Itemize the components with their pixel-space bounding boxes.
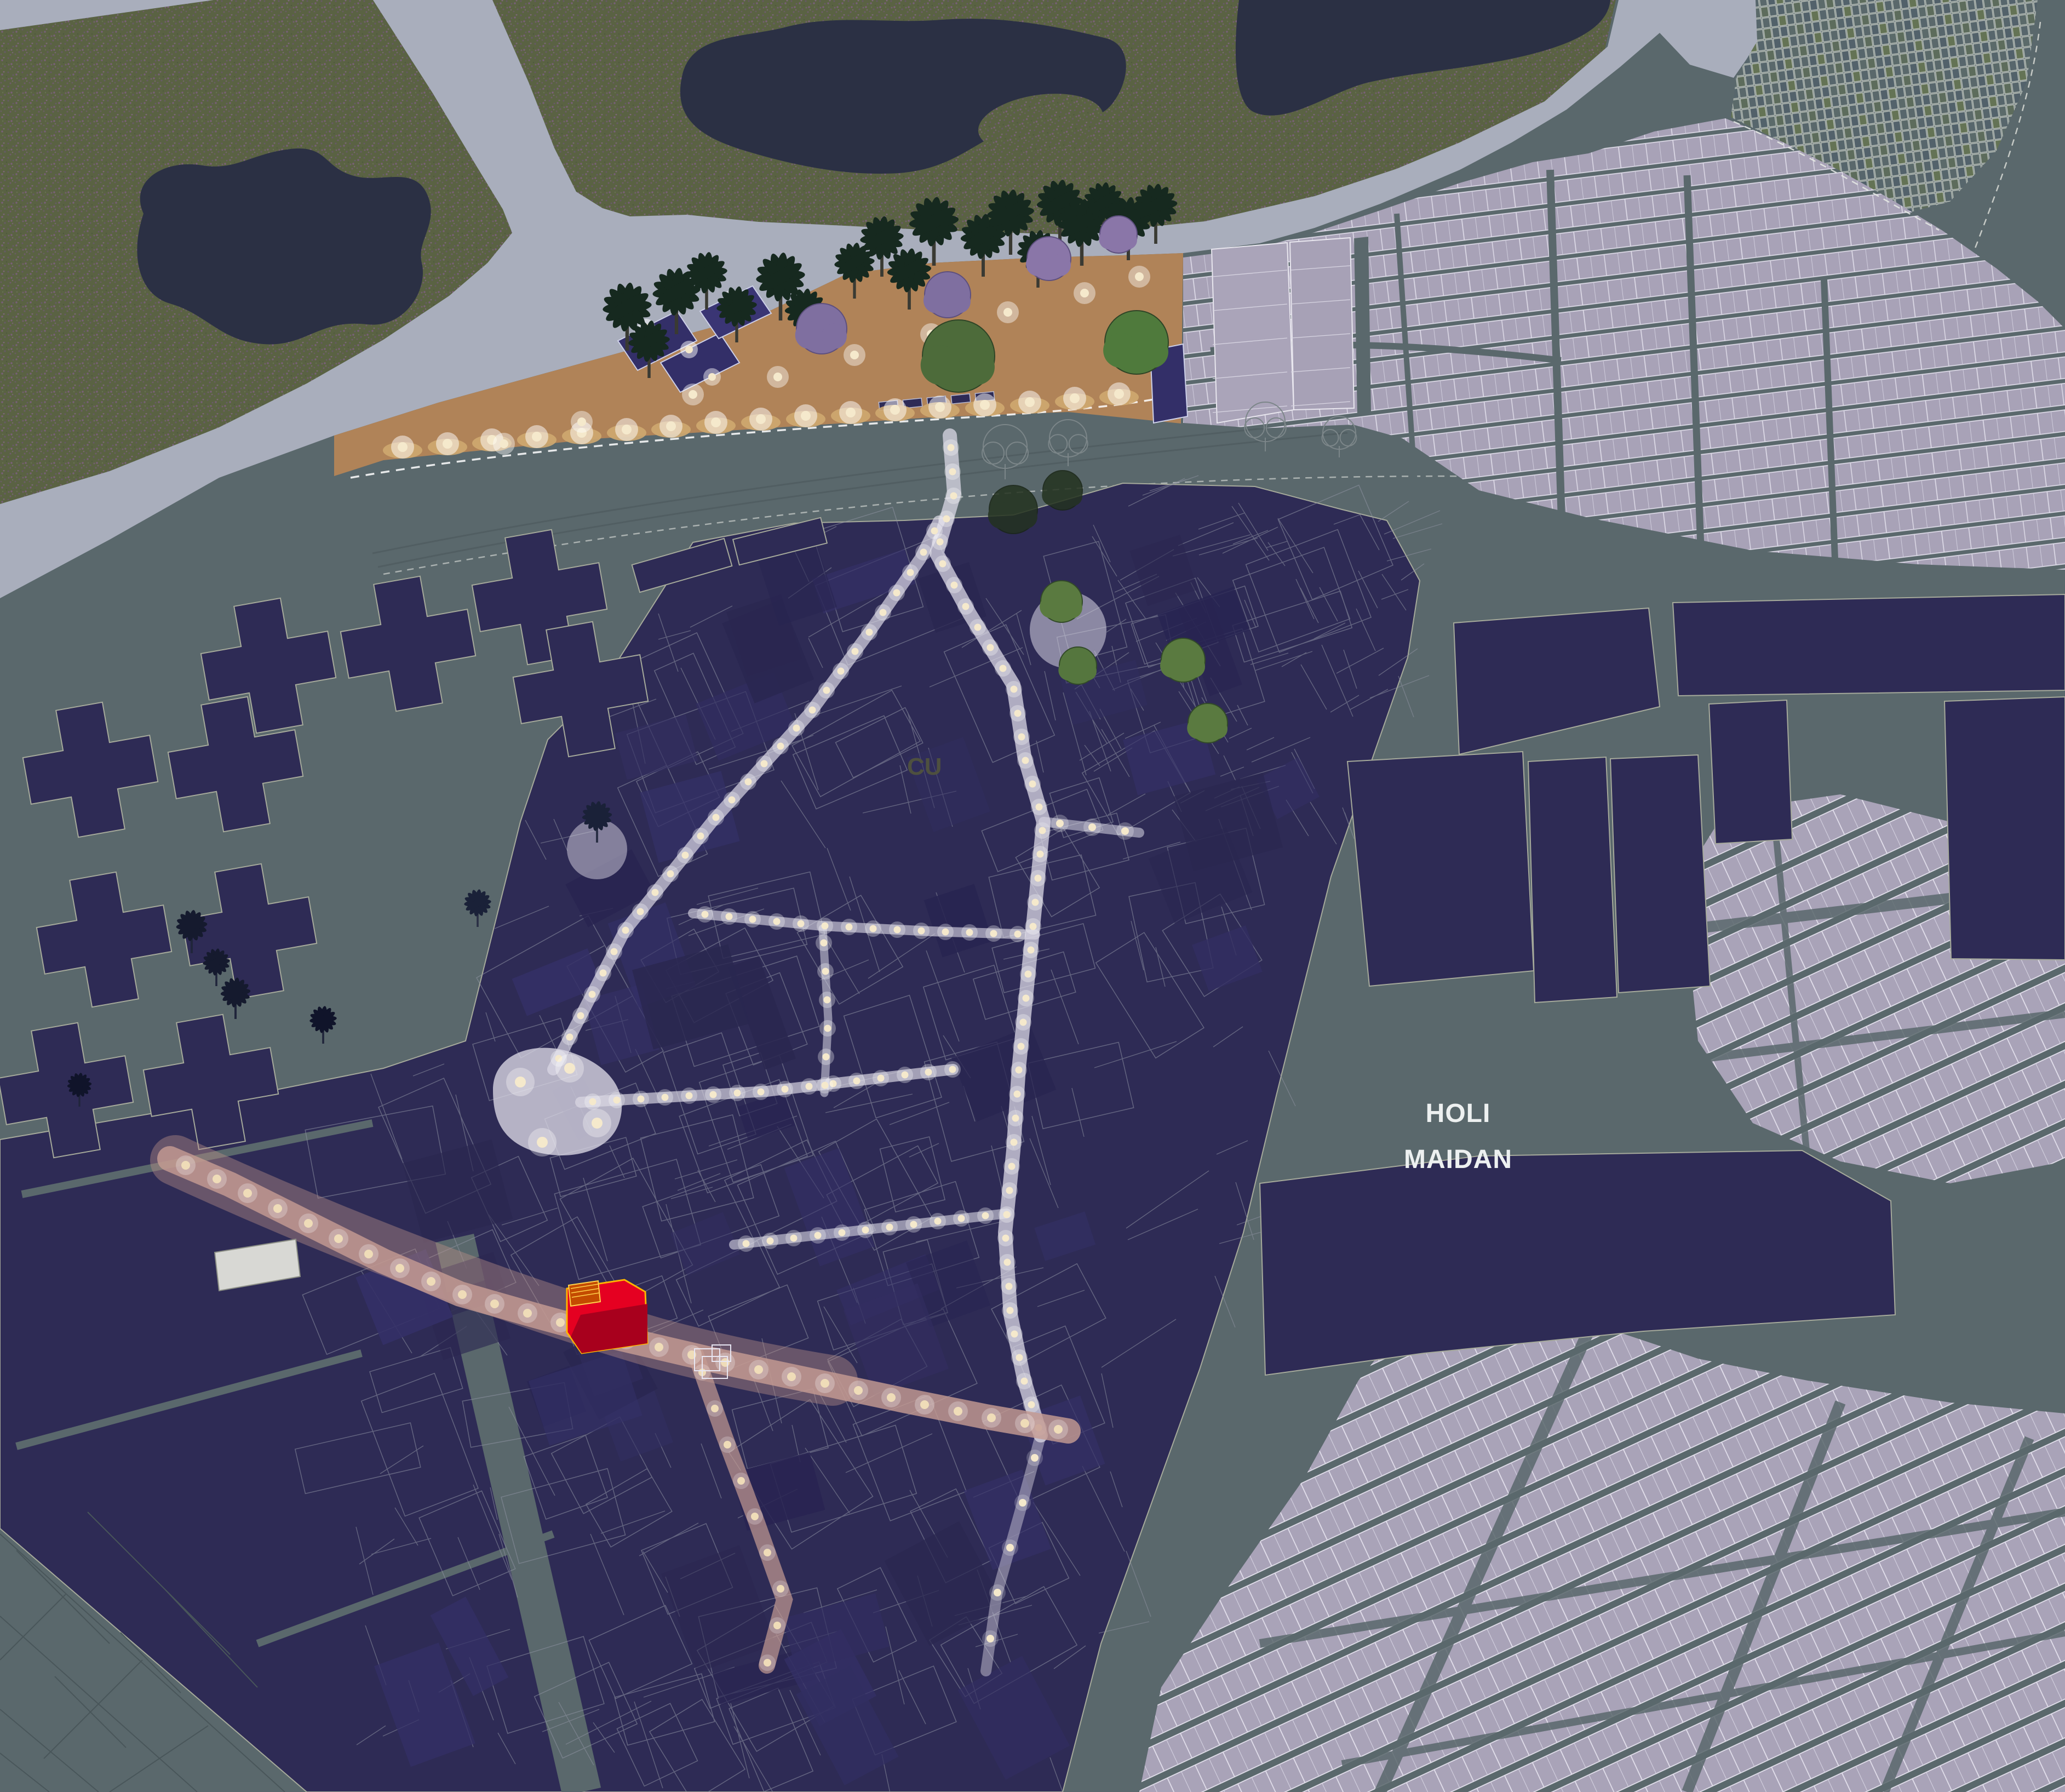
svg-text:MAIDAN: MAIDAN bbox=[1404, 1145, 1512, 1174]
svg-text:HOLI: HOLI bbox=[1426, 1099, 1491, 1128]
svg-text:CU: CU bbox=[907, 753, 942, 780]
